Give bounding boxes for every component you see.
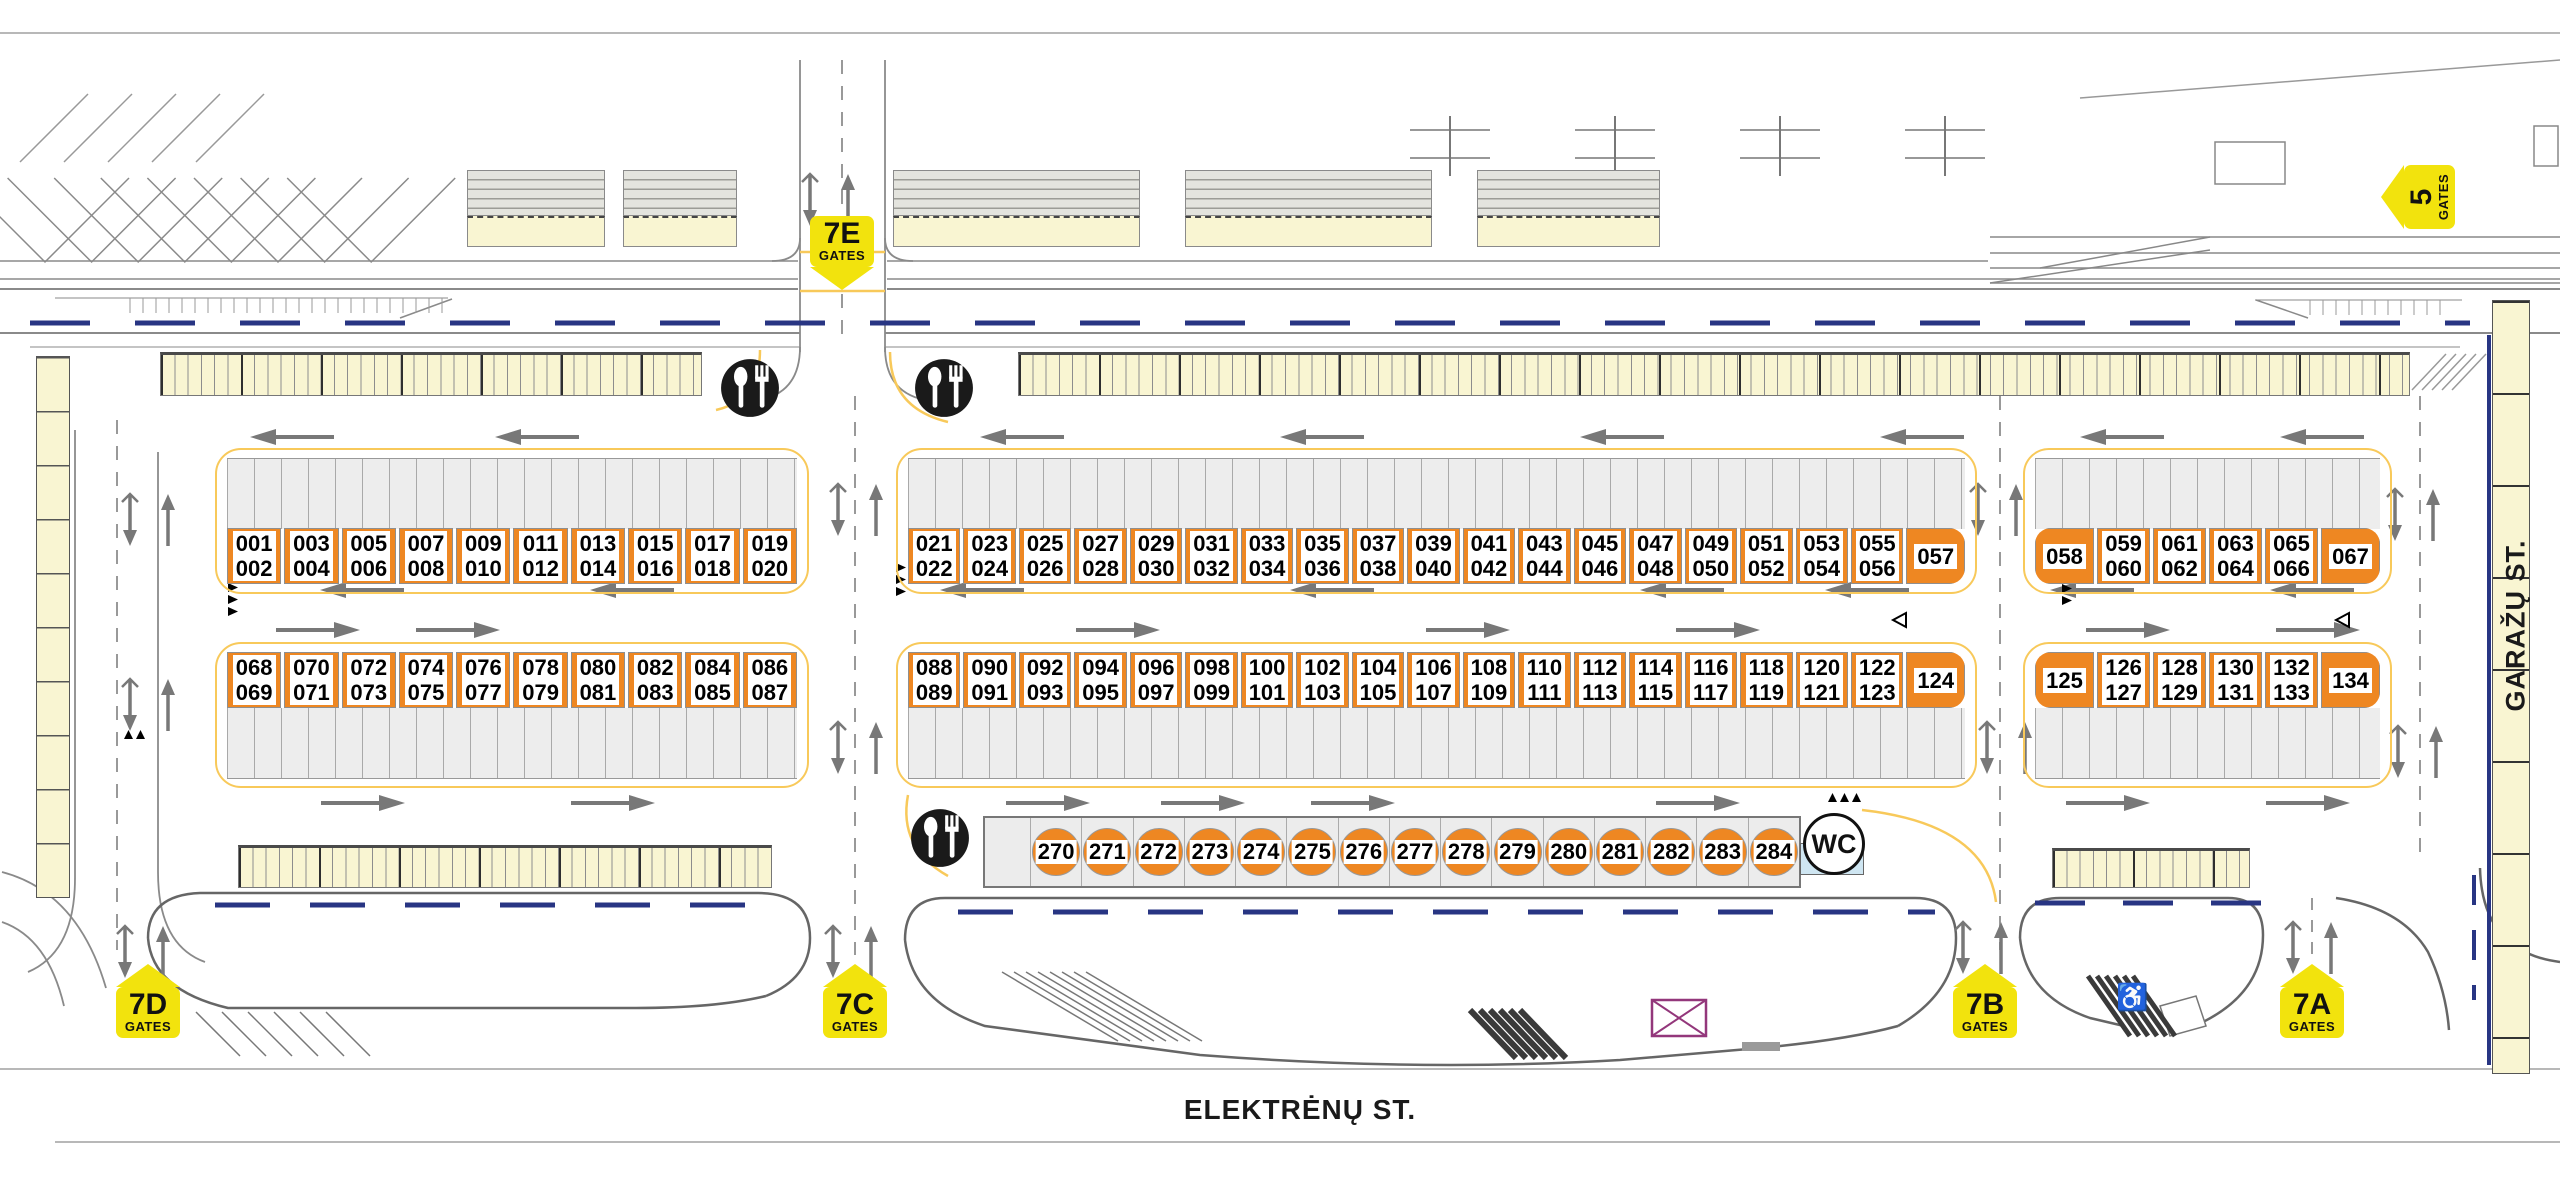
- kiosk-number: 273: [1190, 840, 1231, 864]
- pin-tip: [2381, 165, 2404, 229]
- stall-number: 039040: [1412, 531, 1455, 581]
- market-site-plan: 0010020030040050060070080090100110120130…: [0, 0, 2560, 1184]
- stall-cell[interactable]: 120121: [1796, 652, 1848, 708]
- stall-number: 059060: [2102, 531, 2145, 581]
- stall-cell[interactable]: 039040: [1407, 528, 1459, 584]
- gate-sublabel: GATES: [810, 249, 874, 262]
- building-body: [1477, 216, 1660, 247]
- kiosk-cell[interactable]: 277: [1389, 818, 1440, 886]
- stall-number-text: 057: [1917, 544, 1954, 569]
- stall-cell[interactable]: 128129: [2153, 652, 2206, 708]
- stall-number-text: 015: [637, 531, 674, 556]
- stall-cell[interactable]: 027028: [1074, 528, 1126, 584]
- stall-number-text: 091: [971, 680, 1008, 705]
- stall-cell[interactable]: 084085: [685, 652, 739, 708]
- stall-strip-south-east: [2052, 848, 2250, 888]
- stall-cell[interactable]: 023024: [963, 528, 1015, 584]
- stall-cell[interactable]: 106107: [1407, 652, 1459, 708]
- kiosk-cell[interactable]: 283: [1696, 818, 1747, 886]
- stall-number-text: 003: [293, 531, 330, 556]
- stall-number-text: 041: [1471, 531, 1508, 556]
- stall-block-row2_mid: 0880890900910920930940950960970980991001…: [908, 652, 1965, 778]
- stall-number-text: 027: [1082, 531, 1119, 556]
- gate-pin-7b[interactable]: 7BGATES: [1953, 964, 2017, 1038]
- stall-number-text: 051: [1748, 531, 1785, 556]
- stall-cell[interactable]: 118119: [1740, 652, 1792, 708]
- kiosk-number: 271: [1087, 840, 1128, 864]
- stall-number-text: 092: [1027, 655, 1064, 680]
- stall-number-text: 056: [1859, 556, 1896, 581]
- stall-number-text: 019: [751, 531, 788, 556]
- parking-strip: [2035, 458, 2380, 529]
- stall-number-text: 097: [1138, 680, 1175, 705]
- stall-number: 025026: [1024, 531, 1067, 581]
- stall-cell[interactable]: 055056: [1851, 528, 1903, 584]
- stall-number-text: 047: [1637, 531, 1674, 556]
- building-roof: [467, 170, 605, 216]
- stall-cell[interactable]: 112113: [1574, 652, 1626, 708]
- stall-number: 007008: [405, 531, 448, 581]
- stall-number-text: 007: [408, 531, 445, 556]
- stall-cell[interactable]: 086087: [743, 652, 797, 708]
- stall-cell[interactable]: 061062: [2153, 528, 2206, 584]
- stall-number-text: 073: [350, 680, 387, 705]
- stall-number: 067: [2329, 544, 2372, 569]
- stall-cell[interactable]: 108109: [1463, 652, 1515, 708]
- stall-cell[interactable]: 065066: [2265, 528, 2318, 584]
- stall-cell[interactable]: 100101: [1241, 652, 1293, 708]
- kiosk-cell[interactable]: 273: [1184, 818, 1235, 886]
- stall-cell[interactable]: 019020: [743, 528, 797, 584]
- stall-number: 037038: [1357, 531, 1400, 581]
- stall-number-text: 060: [2105, 556, 2142, 581]
- stall-cell[interactable]: 015016: [628, 528, 682, 584]
- stall-number-text: 104: [1360, 655, 1397, 680]
- stall-cell[interactable]: 125: [2035, 652, 2094, 708]
- stall-cell[interactable]: 088089: [908, 652, 960, 708]
- gate-id: 7C: [823, 989, 887, 1020]
- stall-number-text: 049: [1692, 531, 1729, 556]
- stall-cell[interactable]: 025026: [1019, 528, 1071, 584]
- building: [623, 170, 737, 247]
- building-body: [623, 216, 737, 247]
- building-roof: [893, 170, 1140, 216]
- gate-pin-7d[interactable]: 7DGATES: [116, 964, 180, 1038]
- stall-cell[interactable]: 126127: [2097, 652, 2150, 708]
- kiosk-cell[interactable]: 284: [1748, 818, 1799, 886]
- stall-number: 011012: [519, 531, 562, 581]
- stall-number-text: 030: [1138, 556, 1175, 581]
- kiosk-cell[interactable]: 279: [1491, 818, 1542, 886]
- stall-number-text: 042: [1471, 556, 1508, 581]
- stall-number: 029030: [1135, 531, 1178, 581]
- stall-number-text: 112: [1582, 655, 1618, 680]
- stall-number-text: 026: [1027, 556, 1064, 581]
- stall-number-text: 095: [1082, 680, 1119, 705]
- stall-number: 063064: [2214, 531, 2257, 581]
- parking-strip: [227, 458, 797, 529]
- stall-number: 125: [2043, 668, 2086, 693]
- stall-cell[interactable]: 029030: [1130, 528, 1182, 584]
- stall-cell[interactable]: 043044: [1518, 528, 1570, 584]
- stall-number-text: 070: [293, 655, 330, 680]
- pin-tip: [2280, 964, 2344, 987]
- stall-cell[interactable]: 096097: [1130, 652, 1182, 708]
- stall-number-text: 010: [465, 556, 502, 581]
- kiosk-cell[interactable]: 282: [1645, 818, 1696, 886]
- pin-tip: [1953, 964, 2017, 987]
- stall-cell[interactable]: 011012: [513, 528, 567, 584]
- stall-cell[interactable]: 057: [1906, 528, 1965, 584]
- stall-number: 053054: [1800, 531, 1843, 581]
- stall-number-text: 086: [751, 655, 788, 680]
- stall-number: 045046: [1579, 531, 1622, 581]
- stall-number-text: 053: [1803, 531, 1840, 556]
- stall-cell[interactable]: 005006: [342, 528, 396, 584]
- stall-number-text: 032: [1193, 556, 1230, 581]
- stall-cell[interactable]: 090091: [963, 652, 1015, 708]
- stall-number-text: 031: [1193, 531, 1230, 556]
- stall-cell[interactable]: 124: [1906, 652, 1965, 708]
- stall-number-text: 050: [1692, 556, 1729, 581]
- stall-number-text: 033: [1249, 531, 1286, 556]
- stall-number-text: 084: [694, 655, 731, 680]
- stall-number-text: 085: [694, 680, 731, 705]
- kiosk-cell[interactable]: 278: [1440, 818, 1491, 886]
- stall-number: 005006: [347, 531, 390, 581]
- stall-number-text: 013: [580, 531, 617, 556]
- stall-number: 102103: [1301, 655, 1344, 705]
- building: [1477, 170, 1660, 247]
- stall-number: 082083: [634, 655, 677, 705]
- kiosk-row: 2702712722732742752762772782792802812822…: [983, 816, 1801, 888]
- building-roof: [1477, 170, 1660, 216]
- kiosk-cell[interactable]: 272: [1133, 818, 1184, 886]
- stall-number: 088089: [913, 655, 956, 705]
- stall-number: 031032: [1190, 531, 1233, 581]
- stall-number: 128129: [2158, 655, 2201, 705]
- stall-number-text: 130: [2217, 655, 2254, 680]
- stall-number: 023024: [968, 531, 1011, 581]
- stall-cell[interactable]: 053054: [1796, 528, 1848, 584]
- stall-number-text: 009: [465, 531, 502, 556]
- stall-number: 080081: [577, 655, 620, 705]
- stall-number: 041042: [1468, 531, 1511, 581]
- stall-cell[interactable]: 130131: [2209, 652, 2262, 708]
- stall-number: 065066: [2270, 531, 2313, 581]
- parking-strip: [2035, 708, 2380, 779]
- stall-number-text: 035: [1304, 531, 1341, 556]
- stall-number-text: 068: [236, 655, 273, 680]
- stall-cells: 0880890900910920930940950960970980991001…: [908, 652, 1965, 708]
- stall-number: 110111: [1524, 655, 1566, 705]
- stall-number: 074075: [405, 655, 448, 705]
- stall-number-text: 058: [2046, 544, 2083, 569]
- stall-number-text: 099: [1193, 680, 1230, 705]
- stall-number: 003004: [290, 531, 333, 581]
- kiosk-cell[interactable]: 271: [1081, 818, 1132, 886]
- stall-cell[interactable]: 072073: [342, 652, 396, 708]
- stall-number-text: 129: [2161, 680, 2198, 705]
- stall-number-text: 075: [408, 680, 445, 705]
- stall-number-text: 054: [1803, 556, 1840, 581]
- stall-number: 021022: [913, 531, 956, 581]
- stall-number-text: 079: [522, 680, 559, 705]
- stall-number-text: 093: [1027, 680, 1064, 705]
- stall-cell[interactable]: 037038: [1352, 528, 1404, 584]
- stall-block-row1_mid: 0210220230240250260270280290300310320330…: [908, 458, 1965, 584]
- stall-cell[interactable]: 082083: [628, 652, 682, 708]
- stall-cell[interactable]: 035036: [1296, 528, 1348, 584]
- stall-number-text: 133: [2273, 680, 2310, 705]
- stall-number: 035036: [1301, 531, 1344, 581]
- stall-cell[interactable]: 068069: [227, 652, 281, 708]
- stall-number-text: 020: [751, 556, 788, 581]
- stall-cell[interactable]: 049050: [1685, 528, 1737, 584]
- stall-block-row1_left: 0010020030040050060070080090100110120130…: [227, 458, 797, 584]
- stall-number-text: 078: [522, 655, 559, 680]
- gate-id: 7D: [116, 989, 180, 1020]
- stall-number: 019020: [748, 531, 791, 581]
- stall-number-text: 028: [1082, 556, 1119, 581]
- stall-number-text: 024: [971, 556, 1008, 581]
- kiosk-cell[interactable]: 275: [1286, 818, 1337, 886]
- stall-cells: 0210220230240250260270280290300310320330…: [908, 528, 1965, 584]
- stall-number-text: 123: [1859, 680, 1896, 705]
- stall-cell[interactable]: 116117: [1685, 652, 1737, 708]
- stall-number: 096097: [1135, 655, 1178, 705]
- stall-cell[interactable]: 003004: [284, 528, 338, 584]
- garage-strip-west: [36, 356, 70, 898]
- stall-number-text: 014: [580, 556, 617, 581]
- stall-number: 058: [2043, 544, 2086, 569]
- stall-number-text: 121: [1803, 680, 1840, 705]
- stall-cell[interactable]: 021022: [908, 528, 960, 584]
- gate-sublabel: GATES: [1953, 1020, 2017, 1033]
- stall-number-text: 122: [1859, 655, 1896, 680]
- stall-cell[interactable]: 102103: [1296, 652, 1348, 708]
- stall-number-text: 116: [1693, 655, 1729, 680]
- kiosk-number: 277: [1395, 840, 1436, 864]
- restaurant-icon[interactable]: [719, 357, 781, 419]
- stall-number: 084085: [691, 655, 734, 705]
- stall-number-text: 038: [1360, 556, 1397, 581]
- stall-number: 098099: [1190, 655, 1233, 705]
- stall-number: 027028: [1079, 531, 1122, 581]
- stall-number-text: 017: [694, 531, 731, 556]
- kiosk-number: 280: [1548, 840, 1589, 864]
- kiosk-cell[interactable]: 280: [1543, 818, 1594, 886]
- kiosk-number: 276: [1343, 840, 1384, 864]
- stall-number-text: 067: [2332, 544, 2369, 569]
- stall-number: 009010: [462, 531, 505, 581]
- stall-number-text: 083: [637, 680, 674, 705]
- stall-cell[interactable]: 080081: [571, 652, 625, 708]
- stall-number-text: 052: [1748, 556, 1785, 581]
- stall-cell[interactable]: 092093: [1019, 652, 1071, 708]
- gate-pin-7a[interactable]: 7AGATES: [2280, 964, 2344, 1038]
- stall-number: 017018: [691, 531, 734, 581]
- wc-sign[interactable]: WC: [1803, 813, 1865, 875]
- stall-number-text: 134: [2332, 668, 2369, 693]
- stall-number: 049050: [1689, 531, 1732, 581]
- stall-number-text: 072: [350, 655, 387, 680]
- stall-cell[interactable]: 031032: [1185, 528, 1237, 584]
- stall-number-text: 120: [1803, 655, 1840, 680]
- stall-number-text: 127: [2105, 680, 2142, 705]
- kiosk-cell[interactable]: 276: [1338, 818, 1389, 886]
- stall-number: 118119: [1746, 655, 1788, 705]
- stall-cell[interactable]: 098099: [1185, 652, 1237, 708]
- stall-cells: 0680690700710720730740750760770780790800…: [227, 652, 797, 708]
- stall-number-text: 048: [1637, 556, 1674, 581]
- stall-cell[interactable]: 070071: [284, 652, 338, 708]
- stall-number-text: 036: [1304, 556, 1341, 581]
- stall-number: 130131: [2214, 655, 2257, 705]
- stall-number-text: 110: [1527, 655, 1563, 680]
- kiosk-cell[interactable]: 274: [1235, 818, 1286, 886]
- stall-number-text: 119: [1749, 680, 1785, 705]
- stall-cell[interactable]: 017018: [685, 528, 739, 584]
- stall-strip-north-west: [160, 352, 702, 396]
- stall-cell[interactable]: 104105: [1352, 652, 1404, 708]
- stall-block-row2_left: 0680690700710720730740750760770780790800…: [227, 652, 797, 778]
- stall-cell[interactable]: 078079: [513, 652, 567, 708]
- stall-number-text: 117: [1693, 680, 1729, 705]
- stall-number: 086087: [748, 655, 791, 705]
- stall-number-text: 061: [2161, 531, 2198, 556]
- stall-number: 124: [1914, 668, 1957, 693]
- stall-cell[interactable]: 045046: [1574, 528, 1626, 584]
- stall-number-text: 005: [350, 531, 387, 556]
- wc-label: WC: [1812, 829, 1857, 860]
- stall-number-text: 125: [2046, 668, 2083, 693]
- gate-pin-5[interactable]: 5GATES: [2381, 165, 2455, 229]
- gate-pin-7e[interactable]: 7EGATES: [810, 216, 874, 290]
- restaurant-icon[interactable]: [909, 807, 971, 869]
- building: [1185, 170, 1432, 247]
- stall-cell[interactable]: 007008: [399, 528, 453, 584]
- kiosk-cell[interactable]: 281: [1594, 818, 1645, 886]
- parking-strip: [908, 458, 1965, 529]
- stall-cells: 0010020030040050060070080090100110120130…: [227, 528, 797, 584]
- stall-cell[interactable]: 132133: [2265, 652, 2318, 708]
- stall-cell[interactable]: 009010: [456, 528, 510, 584]
- stall-number-text: 114: [1638, 655, 1674, 680]
- stall-cell[interactable]: 067: [2321, 528, 2380, 584]
- stall-cells: 125126127128129130131132133134: [2035, 652, 2380, 708]
- street-label-garazu: GARAŽŲ ST.: [2501, 496, 2532, 756]
- stall-number-text: 082: [637, 655, 674, 680]
- stall-cell[interactable]: 076077: [456, 652, 510, 708]
- kiosk-cell[interactable]: 270: [1030, 818, 1081, 886]
- stall-cell[interactable]: 047048: [1629, 528, 1681, 584]
- stall-cell[interactable]: 094095: [1074, 652, 1126, 708]
- stall-number-text: 022: [916, 556, 953, 581]
- stall-number: 090091: [968, 655, 1011, 705]
- stall-cell[interactable]: 122123: [1851, 652, 1903, 708]
- stall-number: 043044: [1523, 531, 1566, 581]
- stall-number-text: 102: [1304, 655, 1341, 680]
- pin-tip: [116, 964, 180, 987]
- stall-number: 120121: [1800, 655, 1843, 705]
- pin-tip: [823, 964, 887, 987]
- stall-number: 055056: [1856, 531, 1899, 581]
- building-body: [893, 216, 1140, 247]
- stall-block-row2_right: 125126127128129130131132133134: [2035, 652, 2380, 778]
- stall-number-text: 004: [293, 556, 330, 581]
- stall-number-text: 089: [916, 680, 953, 705]
- stall-number-text: 074: [408, 655, 445, 680]
- stall-number-text: 012: [522, 556, 559, 581]
- gate-pin-7c[interactable]: 7CGATES: [823, 964, 887, 1038]
- stall-cells: 058059060061062063064065066067: [2035, 528, 2380, 584]
- building: [893, 170, 1140, 247]
- stall-number: 033034: [1246, 531, 1289, 581]
- stall-cell[interactable]: 063064: [2209, 528, 2262, 584]
- stall-number-text: 087: [751, 680, 788, 705]
- stall-number-text: 081: [580, 680, 617, 705]
- stall-number-text: 088: [916, 655, 953, 680]
- stall-cell[interactable]: 013014: [571, 528, 625, 584]
- stall-number-text: 111: [1527, 680, 1563, 705]
- stall-number-text: 023: [971, 531, 1008, 556]
- stall-cell[interactable]: 074075: [399, 652, 453, 708]
- stall-cell[interactable]: 114115: [1629, 652, 1681, 708]
- stall-number-text: 105: [1360, 680, 1397, 705]
- stall-number-text: 101: [1249, 680, 1286, 705]
- gate-sublabel: GATES: [116, 1020, 180, 1033]
- stall-number-text: 096: [1138, 655, 1175, 680]
- stall-number: 104105: [1357, 655, 1400, 705]
- stall-cell[interactable]: 001002: [227, 528, 281, 584]
- parking-strip: [908, 708, 1965, 779]
- stall-cell[interactable]: 110111: [1518, 652, 1570, 708]
- wheelchair-icon: ♿: [2116, 982, 2148, 1013]
- stall-cell[interactable]: 041042: [1463, 528, 1515, 584]
- stall-number-text: 018: [694, 556, 731, 581]
- stall-number-text: 021: [916, 531, 953, 556]
- restaurant-icon[interactable]: [913, 357, 975, 419]
- stall-number: 070071: [290, 655, 333, 705]
- stall-number-text: 113: [1582, 680, 1618, 705]
- stall-number: 092093: [1024, 655, 1067, 705]
- stall-cell[interactable]: 033034: [1241, 528, 1293, 584]
- stall-number-text: 076: [465, 655, 502, 680]
- kiosk-number: 274: [1241, 840, 1282, 864]
- stall-number-text: 002: [236, 556, 273, 581]
- stall-number: 100101: [1246, 655, 1289, 705]
- street-label-elektrenu: ELEKTRĖNŲ ST.: [1100, 1094, 1500, 1126]
- kiosk-number: 281: [1600, 840, 1641, 864]
- stall-number: 072073: [347, 655, 390, 705]
- stall-cell[interactable]: 051052: [1740, 528, 1792, 584]
- stall-number-text: 044: [1526, 556, 1563, 581]
- stall-number-text: 090: [971, 655, 1008, 680]
- kiosk-number: 275: [1292, 840, 1333, 864]
- stall-number-text: 066: [2273, 556, 2310, 581]
- stall-cell[interactable]: 058: [2035, 528, 2094, 584]
- stall-number-text: 016: [637, 556, 674, 581]
- stall-cell[interactable]: 059060: [2097, 528, 2150, 584]
- gate-sublabel: GATES: [823, 1020, 887, 1033]
- stall-number: 076077: [462, 655, 505, 705]
- stall-number-text: 065: [2273, 531, 2310, 556]
- building-roof: [623, 170, 737, 216]
- stall-cell[interactable]: 134: [2321, 652, 2380, 708]
- stall-number: 134: [2329, 668, 2372, 693]
- parking-strip: [227, 708, 797, 779]
